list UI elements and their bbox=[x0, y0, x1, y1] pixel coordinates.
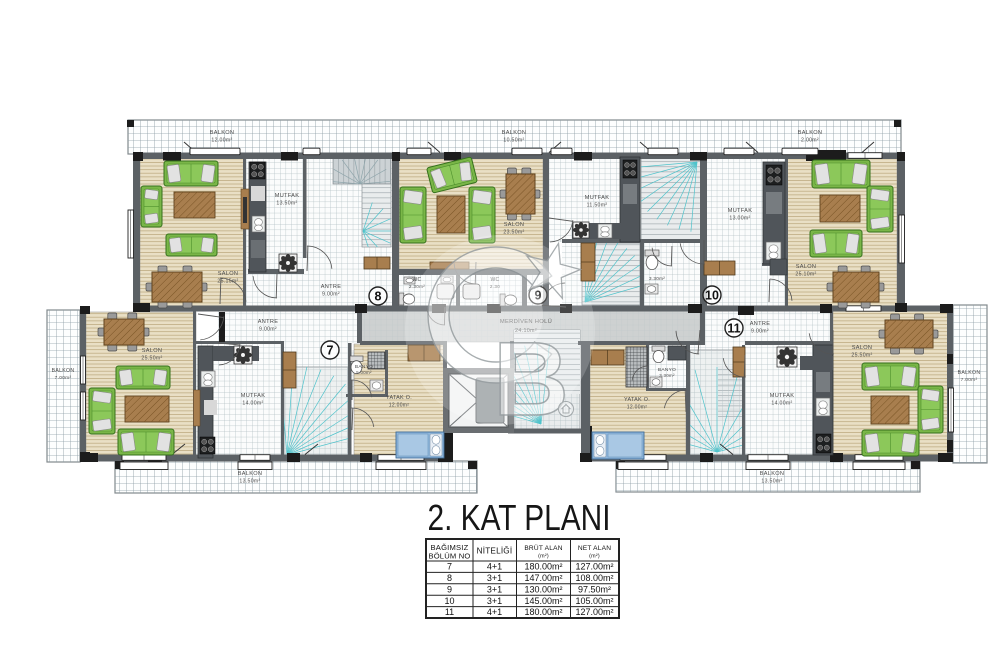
svg-text:2. KAT PLANI: 2. KAT PLANI bbox=[428, 497, 611, 538]
svg-text:9.00m²: 9.00m² bbox=[751, 329, 769, 335]
svg-text:ANTRE: ANTRE bbox=[258, 319, 278, 325]
svg-text:12.00m²: 12.00m² bbox=[627, 405, 647, 411]
svg-text:11: 11 bbox=[445, 607, 454, 617]
svg-text:11: 11 bbox=[727, 322, 740, 336]
svg-text:7: 7 bbox=[327, 344, 334, 358]
svg-text:8: 8 bbox=[375, 290, 382, 304]
svg-text:3+1: 3+1 bbox=[487, 584, 502, 594]
svg-text:BRÜT ALAN: BRÜT ALAN bbox=[524, 544, 562, 552]
svg-text:13.50m²: 13.50m² bbox=[276, 201, 297, 207]
svg-text:BALKON: BALKON bbox=[798, 130, 823, 136]
svg-text:13.50m²: 13.50m² bbox=[761, 479, 782, 485]
svg-text:9.00m²: 9.00m² bbox=[322, 292, 340, 298]
svg-text:3+1: 3+1 bbox=[487, 573, 502, 583]
svg-text:BALKON: BALKON bbox=[210, 130, 235, 136]
svg-text:SALON: SALON bbox=[142, 348, 162, 354]
svg-text:180.00m²: 180.00m² bbox=[524, 607, 562, 617]
svg-text:(m²): (m²) bbox=[538, 554, 549, 560]
svg-text:105.00m²: 105.00m² bbox=[575, 596, 613, 606]
svg-text:9.00m²: 9.00m² bbox=[259, 327, 277, 333]
svg-text:BALKON: BALKON bbox=[238, 471, 263, 477]
svg-text:ANTRE: ANTRE bbox=[750, 321, 770, 327]
svg-text:108.00m²: 108.00m² bbox=[575, 573, 613, 583]
svg-text:10.50m²: 10.50m² bbox=[503, 138, 524, 144]
svg-text:MUTFAK: MUTFAK bbox=[585, 195, 610, 201]
svg-text:13.50m²: 13.50m² bbox=[239, 479, 260, 485]
svg-text:MUTFAK: MUTFAK bbox=[728, 208, 753, 214]
svg-text:5.00m²: 5.00m² bbox=[356, 370, 372, 375]
svg-text:YATAK O.: YATAK O. bbox=[624, 397, 650, 403]
svg-text:127.00m²: 127.00m² bbox=[575, 607, 613, 617]
svg-text:7.00m²: 7.00m² bbox=[55, 375, 72, 381]
svg-text:14.00m²: 14.00m² bbox=[242, 401, 263, 407]
svg-text:MUTFAK: MUTFAK bbox=[275, 193, 300, 199]
svg-text:180.00m²: 180.00m² bbox=[524, 562, 562, 572]
svg-text:NİTELİĞİ: NİTELİĞİ bbox=[477, 546, 513, 556]
svg-text:MUTFAK: MUTFAK bbox=[241, 393, 266, 399]
svg-text:SALON: SALON bbox=[852, 345, 872, 351]
svg-text:(m²): (m²) bbox=[589, 554, 600, 560]
svg-text:SALON: SALON bbox=[796, 264, 816, 270]
svg-text:2.00m²: 2.00m² bbox=[801, 138, 819, 144]
svg-text:4+1: 4+1 bbox=[487, 562, 502, 572]
svg-text:3.30m²: 3.30m² bbox=[649, 276, 665, 281]
svg-text:97.50m²: 97.50m² bbox=[578, 584, 611, 594]
svg-text:9: 9 bbox=[447, 584, 452, 594]
svg-text:B: B bbox=[493, 321, 569, 438]
svg-text:4+1: 4+1 bbox=[487, 607, 502, 617]
svg-text:147.00m²: 147.00m² bbox=[524, 573, 562, 583]
svg-text:25.50m²: 25.50m² bbox=[141, 356, 162, 362]
svg-text:SALON: SALON bbox=[504, 222, 524, 228]
svg-text:10: 10 bbox=[705, 289, 719, 303]
svg-text:BALKON: BALKON bbox=[958, 370, 981, 376]
svg-text:12.00m²: 12.00m² bbox=[211, 138, 232, 144]
svg-text:25.15m²: 25.15m² bbox=[217, 279, 238, 285]
svg-text:14.00m²: 14.00m² bbox=[771, 401, 792, 407]
svg-text:BALKON: BALKON bbox=[502, 130, 527, 136]
svg-text:10: 10 bbox=[444, 596, 454, 606]
svg-text:25.10m²: 25.10m² bbox=[795, 272, 816, 278]
svg-text:BALKON: BALKON bbox=[760, 471, 785, 477]
svg-text:ANTRE: ANTRE bbox=[321, 284, 341, 290]
svg-text:13.00m²: 13.00m² bbox=[729, 216, 750, 222]
svg-text:MUTFAK: MUTFAK bbox=[770, 393, 795, 399]
svg-text:23.50m²: 23.50m² bbox=[503, 230, 524, 236]
svg-text:25.50m²: 25.50m² bbox=[851, 353, 872, 359]
svg-text:7.00m²: 7.00m² bbox=[961, 377, 978, 383]
svg-text:BÖLÜM NO: BÖLÜM NO bbox=[428, 552, 470, 561]
svg-text:12.00m²: 12.00m² bbox=[389, 403, 409, 409]
svg-text:127.00m²: 127.00m² bbox=[575, 562, 613, 572]
svg-text:7: 7 bbox=[447, 562, 452, 572]
svg-text:11.50m²: 11.50m² bbox=[587, 203, 608, 209]
svg-text:YATAK O.: YATAK O. bbox=[386, 395, 412, 401]
svg-text:SALON: SALON bbox=[218, 271, 238, 277]
svg-text:8: 8 bbox=[447, 573, 452, 583]
svg-text:130.00m²: 130.00m² bbox=[524, 584, 562, 594]
svg-text:BALKON: BALKON bbox=[52, 368, 75, 374]
svg-text:NET ALAN: NET ALAN bbox=[578, 545, 611, 552]
svg-text:3.30m²: 3.30m² bbox=[659, 373, 675, 378]
svg-text:145.00m²: 145.00m² bbox=[524, 596, 562, 606]
svg-text:3+1: 3+1 bbox=[487, 596, 502, 606]
